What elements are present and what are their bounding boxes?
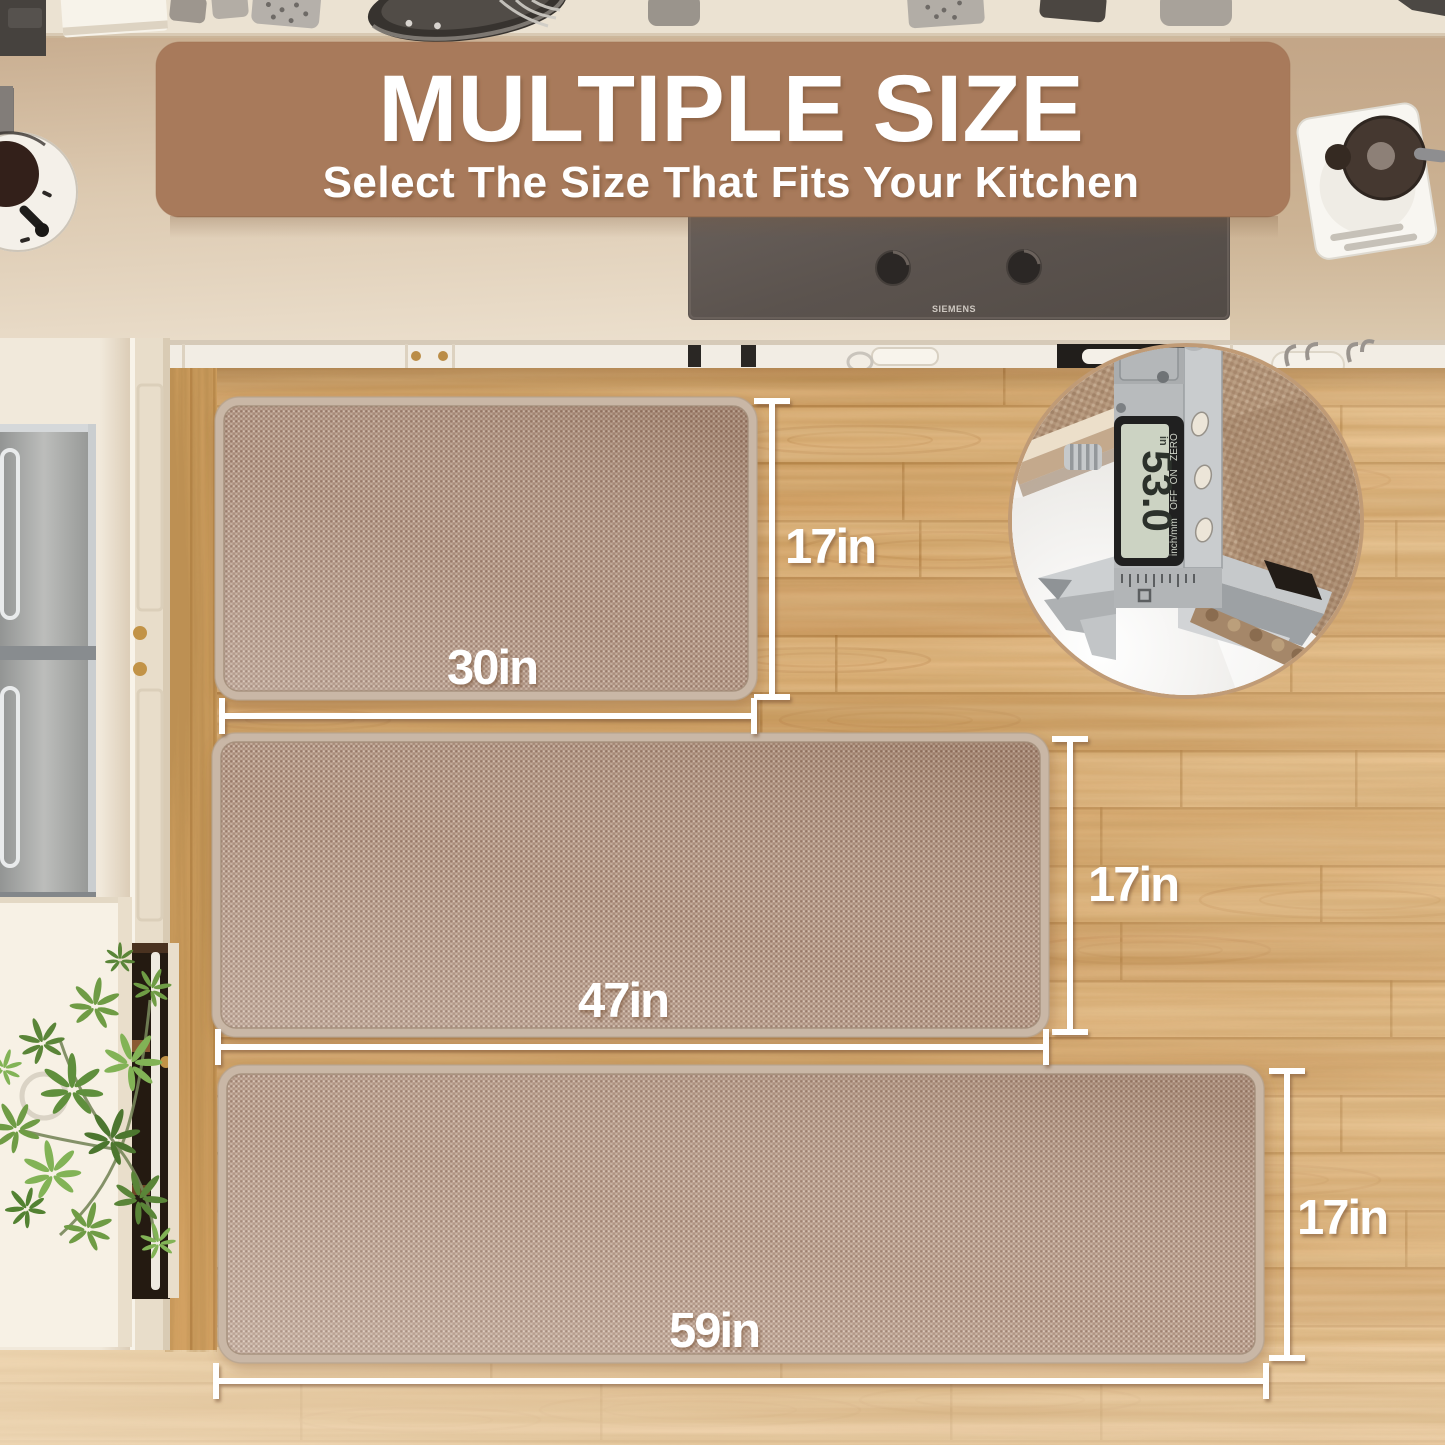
svg-text:17in: 17in — [1088, 858, 1178, 912]
svg-text:inch/mm OFF ON ZERO: inch/mm OFF ON ZERO — [1169, 433, 1180, 556]
svg-text:59in: 59in — [669, 1304, 759, 1358]
svg-text:Select The Size That Fits Your: Select The Size That Fits Your Kitchen — [323, 158, 1140, 207]
svg-text:17in: 17in — [785, 520, 875, 574]
svg-text:30in: 30in — [447, 641, 537, 695]
svg-text:in: in — [1157, 436, 1169, 446]
svg-text:SIEMENS: SIEMENS — [932, 304, 976, 314]
svg-text:MULTIPLE SIZE: MULTIPLE SIZE — [378, 56, 1083, 162]
svg-text:17in: 17in — [1297, 1191, 1387, 1245]
svg-text:47in: 47in — [578, 974, 668, 1028]
